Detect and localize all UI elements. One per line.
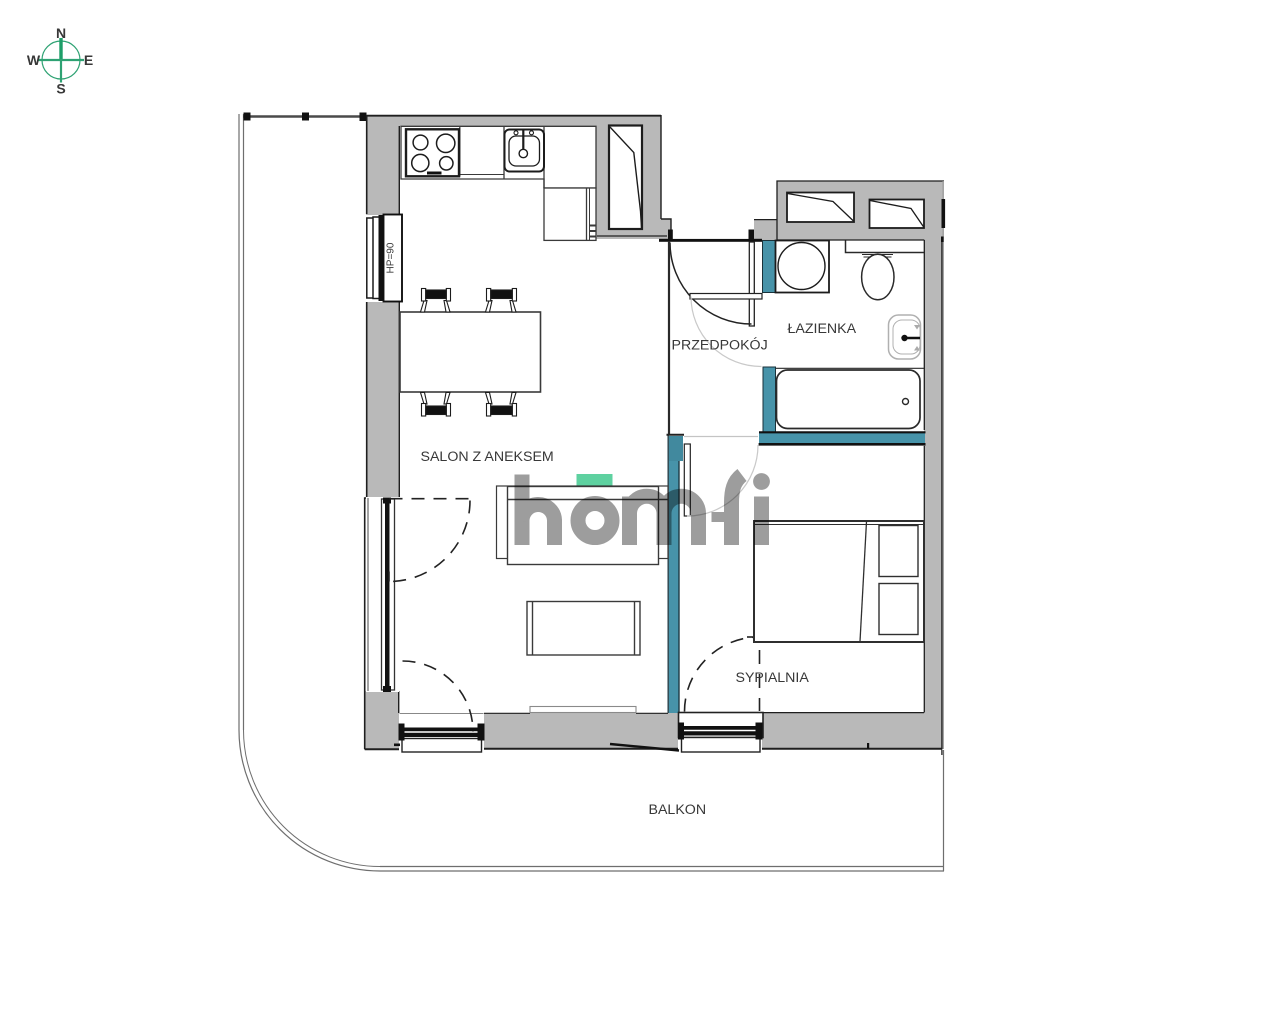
svg-text:E: E (84, 52, 93, 68)
svg-text:W: W (27, 52, 41, 68)
svg-text:BALKON: BALKON (649, 802, 707, 818)
svg-text:N: N (56, 25, 66, 41)
svg-text:SYPIALNIA: SYPIALNIA (736, 670, 810, 686)
svg-text:SALON Z ANEKSEM: SALON Z ANEKSEM (421, 449, 554, 465)
svg-text:HP=90: HP=90 (386, 242, 397, 273)
svg-text:PRZEDPOKÓJ: PRZEDPOKÓJ (672, 337, 768, 354)
svg-text:S: S (56, 81, 65, 97)
svg-text:ŁAZIENKA: ŁAZIENKA (788, 321, 857, 337)
